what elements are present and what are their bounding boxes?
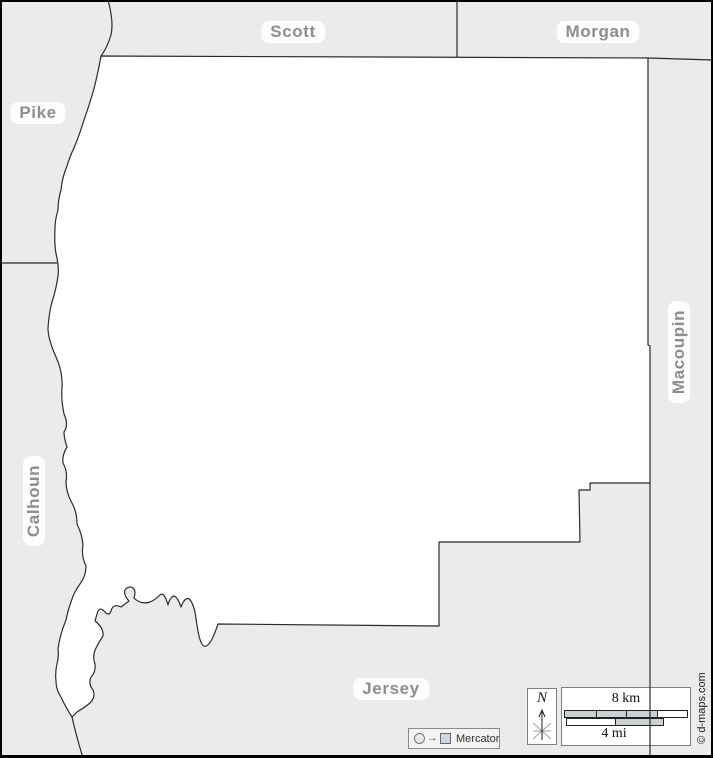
square-icon [440, 733, 451, 744]
scale-km-bar [564, 710, 688, 718]
county-outline-map [0, 0, 713, 758]
scale-km-label: 8 km [612, 691, 640, 707]
region-label-morgan: Morgan [557, 21, 640, 43]
region-label-macoupin: Macoupin [668, 301, 690, 403]
north-label: N [528, 690, 556, 706]
right-arrow-icon: → [427, 733, 438, 744]
region-label-scott: Scott [261, 21, 325, 43]
region-label-calhoun: Calhoun [23, 456, 45, 546]
region-label-jersey: Jersey [353, 678, 429, 700]
region-label-pike: Pike [10, 102, 65, 124]
scale-box: 8 km 4 mi [561, 687, 691, 746]
copyright-text: © d-maps.com [696, 672, 708, 744]
scale-mi-label: 4 mi [601, 726, 626, 742]
projection-label: Mercator [456, 733, 499, 745]
scale-mi-bar [566, 718, 664, 726]
projection-box: → Mercator [408, 728, 500, 749]
compass-box: N [527, 688, 557, 745]
circle-icon [414, 733, 425, 744]
map-canvas: Scott Morgan Pike Calhoun Macoupin Jerse… [0, 0, 713, 758]
compass-rose-icon [528, 706, 556, 744]
